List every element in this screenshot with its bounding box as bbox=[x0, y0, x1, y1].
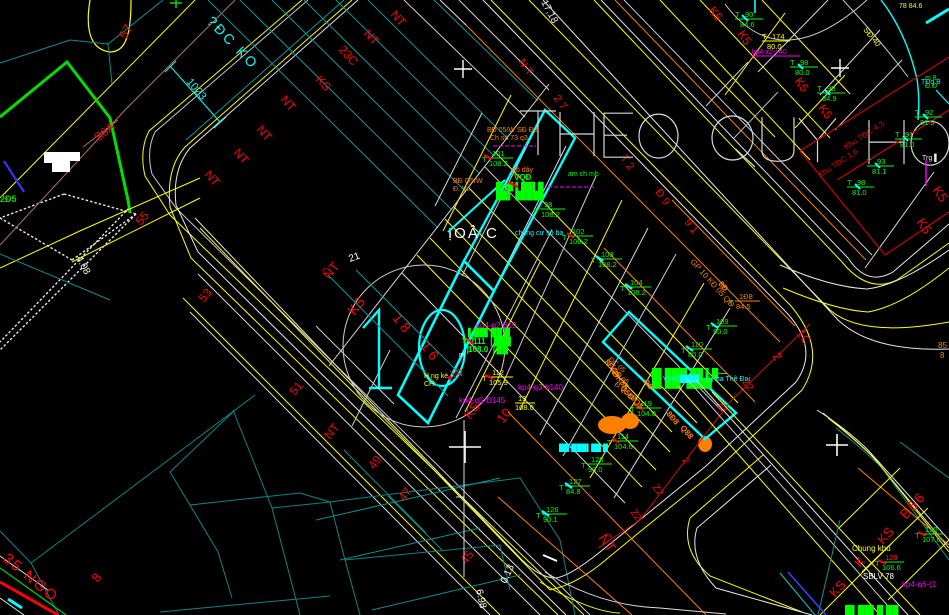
svg-text:84.5: 84.5 bbox=[736, 302, 751, 311]
svg-text:108.0: 108.0 bbox=[515, 403, 534, 412]
svg-text:kp4-q3-b140: kp4-q3-b140 bbox=[518, 383, 563, 392]
svg-text:93: 93 bbox=[877, 157, 885, 166]
svg-text:1Ð8: 1Ð8 bbox=[739, 292, 753, 301]
svg-text:T: T bbox=[762, 32, 767, 41]
svg-text:104.6: 104.6 bbox=[614, 442, 633, 451]
svg-text:T: T bbox=[630, 405, 635, 414]
svg-text:T: T bbox=[536, 511, 541, 520]
svg-text:██▌ █████: ██▌ █████ bbox=[496, 190, 544, 201]
svg-text:92: 92 bbox=[925, 108, 933, 117]
svg-text:Trg ▌: Trg ▌ bbox=[922, 153, 939, 163]
svg-text:114: 114 bbox=[617, 432, 629, 441]
svg-text:T: T bbox=[735, 10, 740, 19]
svg-text:128: 128 bbox=[885, 553, 898, 562]
svg-text:T: T bbox=[895, 130, 900, 139]
svg-text:T: T bbox=[681, 346, 686, 355]
svg-text:Chung khu: Chung khu bbox=[852, 544, 891, 553]
svg-text:8: 8 bbox=[940, 351, 945, 360]
svg-text:120: 120 bbox=[591, 455, 604, 464]
svg-text:m 8: m 8 bbox=[925, 75, 937, 82]
svg-text:90.0: 90.0 bbox=[588, 465, 603, 474]
svg-text:108.2: 108.2 bbox=[598, 260, 617, 269]
svg-text:T: T bbox=[591, 256, 596, 265]
svg-text:85: 85 bbox=[938, 341, 947, 350]
svg-text:T: T bbox=[729, 298, 734, 307]
svg-text:Ð, Vc: Ð, Vc bbox=[453, 186, 471, 193]
svg-text:█▌██▌█ ██: █▌██▌█ ██ bbox=[845, 604, 899, 615]
svg-text:2Ð5: 2Ð5 bbox=[0, 194, 17, 204]
svg-text:chung cư sô ba: chung cư sô ba bbox=[515, 230, 563, 237]
svg-text:ỊOÂ C: ỊOÂ C bbox=[448, 225, 499, 242]
svg-text:H.ng kè: H.ng kè bbox=[424, 373, 448, 380]
svg-text:T: T bbox=[620, 284, 625, 293]
svg-text:kp4-q6-(1: kp4-q6-(1 bbox=[902, 580, 937, 589]
svg-text:SBLV 78: SBLV 78 bbox=[863, 572, 895, 581]
svg-text:108.2: 108.2 bbox=[569, 237, 588, 246]
svg-text:80.0: 80.0 bbox=[767, 42, 782, 51]
svg-text:T: T bbox=[867, 157, 872, 166]
svg-text:▕108.0▕ ██: ▕108.0▕ ██ bbox=[462, 344, 508, 355]
svg-text:78 84.6: 78 84.6 bbox=[899, 3, 922, 10]
svg-text:112: 112 bbox=[492, 368, 504, 377]
svg-text:101: 101 bbox=[492, 149, 505, 158]
svg-text:13: 13 bbox=[518, 394, 526, 403]
svg-text:90: 90 bbox=[745, 10, 753, 19]
svg-text:am ch mb: am ch mb bbox=[568, 171, 599, 178]
svg-text:80.0: 80.0 bbox=[688, 350, 703, 359]
svg-text:104.0: 104.0 bbox=[637, 409, 656, 418]
svg-text:BÐ Q5/W: BÐ Q5/W bbox=[453, 178, 483, 185]
svg-text:T: T bbox=[607, 438, 612, 447]
svg-text:T: T bbox=[534, 206, 539, 215]
svg-text:Ð.Ð: Ð.Ð bbox=[925, 83, 937, 90]
svg-text:T: T bbox=[847, 178, 852, 187]
svg-text:108.2: 108.2 bbox=[627, 288, 646, 297]
svg-text:109: 109 bbox=[716, 317, 729, 326]
svg-text:BÐ 05/W SĐ Đ3: BÐ 05/W SĐ Đ3 bbox=[487, 127, 538, 134]
svg-text:T: T bbox=[915, 108, 920, 117]
svg-text:91: 91 bbox=[905, 130, 913, 139]
svg-text:126: 126 bbox=[546, 505, 559, 514]
svg-text:VQÐ: VQÐ bbox=[514, 173, 532, 182]
svg-text:90.0: 90.0 bbox=[713, 327, 728, 336]
svg-text:98: 98 bbox=[857, 178, 865, 187]
svg-text:m: m bbox=[459, 352, 465, 359]
svg-text:108.2: 108.2 bbox=[489, 159, 508, 168]
svg-text:kp4-q5-Ð145: kp4-q5-Ð145 bbox=[459, 396, 506, 405]
svg-text:Ch sô 73 q3: Ch sô 73 q3 bbox=[490, 135, 528, 142]
svg-text:130: 130 bbox=[925, 525, 938, 534]
svg-text:174: 174 bbox=[772, 32, 785, 41]
svg-text:102: 102 bbox=[572, 227, 585, 236]
svg-text:T: T bbox=[706, 323, 711, 332]
svg-text:98: 98 bbox=[544, 200, 552, 209]
svg-text:90: 90 bbox=[827, 84, 835, 93]
svg-text:90.1: 90.1 bbox=[543, 515, 558, 524]
svg-text:T: T bbox=[817, 84, 822, 93]
svg-text:CH: CH bbox=[424, 381, 434, 388]
svg-text:██-███▌██ █: ██-███▌██ █ bbox=[559, 443, 608, 453]
svg-text:108.2: 108.2 bbox=[541, 210, 560, 219]
svg-text:T: T bbox=[581, 461, 586, 470]
svg-text:T: T bbox=[790, 58, 795, 67]
svg-text:Vị trí ████ - Uỷ ba Thê Ðai: Vị trí ████ - Uỷ ba Thê Ðai bbox=[663, 374, 750, 384]
svg-text:T: T bbox=[559, 483, 564, 492]
svg-text:84.8: 84.8 bbox=[566, 487, 581, 496]
svg-text:98: 98 bbox=[800, 58, 808, 67]
